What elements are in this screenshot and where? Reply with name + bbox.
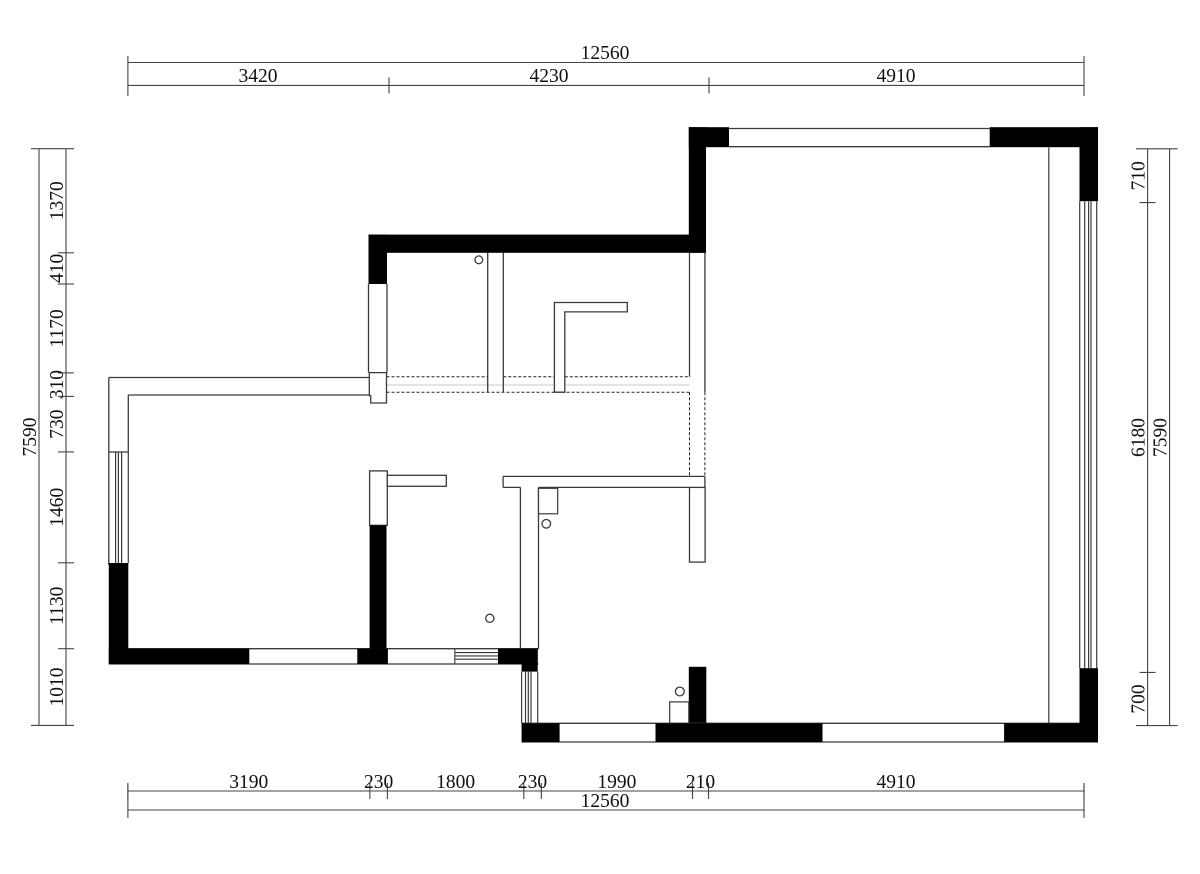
svg-text:1170: 1170 [47, 309, 68, 347]
svg-text:7590: 7590 [1151, 418, 1172, 457]
svg-text:1990: 1990 [597, 772, 636, 793]
svg-text:230: 230 [518, 772, 547, 793]
svg-text:3190: 3190 [229, 772, 268, 793]
svg-text:1460: 1460 [47, 488, 68, 527]
svg-text:410: 410 [47, 254, 68, 283]
svg-text:1800: 1800 [436, 772, 475, 793]
svg-text:310: 310 [47, 370, 68, 399]
svg-text:7590: 7590 [20, 418, 41, 457]
svg-text:4910: 4910 [877, 66, 916, 87]
svg-text:12560: 12560 [581, 791, 630, 812]
svg-text:1010: 1010 [47, 668, 68, 707]
svg-text:1370: 1370 [47, 181, 68, 220]
svg-text:230: 230 [364, 772, 393, 793]
svg-text:1130: 1130 [47, 587, 68, 625]
svg-text:210: 210 [686, 772, 715, 793]
svg-text:4230: 4230 [530, 66, 569, 87]
svg-text:700: 700 [1129, 684, 1150, 713]
svg-text:3420: 3420 [239, 66, 278, 87]
svg-text:710: 710 [1129, 161, 1150, 190]
svg-text:6180: 6180 [1129, 418, 1150, 457]
svg-text:730: 730 [47, 409, 68, 438]
svg-text:12560: 12560 [581, 43, 630, 64]
svg-text:4910: 4910 [877, 772, 916, 793]
